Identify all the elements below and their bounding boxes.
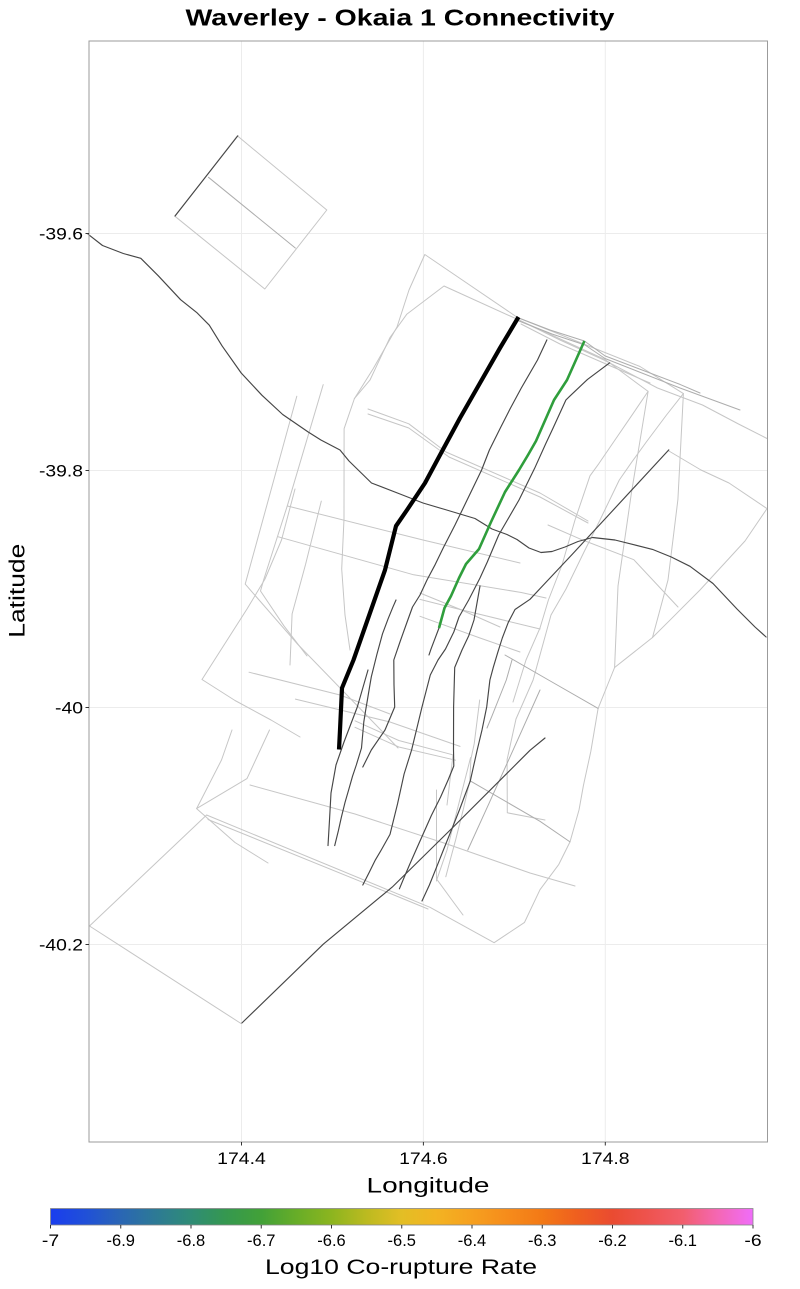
svg-text:174.4: 174.4 xyxy=(217,1149,266,1168)
svg-text:-6.7: -6.7 xyxy=(247,1231,275,1250)
svg-text:174.6: 174.6 xyxy=(399,1149,448,1168)
svg-text:Log10 Co-rupture Rate: Log10 Co-rupture Rate xyxy=(265,1256,537,1279)
svg-text:-6.8: -6.8 xyxy=(177,1231,205,1250)
svg-text:Waverley - Okaia 1 Connectivit: Waverley - Okaia 1 Connectivity xyxy=(186,5,615,31)
svg-text:-6.6: -6.6 xyxy=(317,1231,345,1250)
svg-text:-40.2: -40.2 xyxy=(39,936,83,955)
svg-text:-6.1: -6.1 xyxy=(669,1231,697,1250)
svg-text:-6.9: -6.9 xyxy=(107,1231,135,1250)
svg-text:174.8: 174.8 xyxy=(581,1149,630,1168)
svg-text:-7: -7 xyxy=(42,1231,59,1250)
svg-text:Longitude: Longitude xyxy=(367,1175,490,1198)
svg-text:-6.3: -6.3 xyxy=(528,1231,556,1250)
svg-text:-39.8: -39.8 xyxy=(39,462,83,481)
svg-text:-6: -6 xyxy=(744,1231,761,1250)
svg-text:-6.5: -6.5 xyxy=(388,1231,416,1250)
svg-text:-39.6: -39.6 xyxy=(39,225,83,244)
svg-text:-6.2: -6.2 xyxy=(598,1231,626,1250)
svg-text:Latitude: Latitude xyxy=(5,544,30,638)
svg-text:-6.4: -6.4 xyxy=(458,1231,486,1250)
svg-text:-40: -40 xyxy=(55,699,83,718)
